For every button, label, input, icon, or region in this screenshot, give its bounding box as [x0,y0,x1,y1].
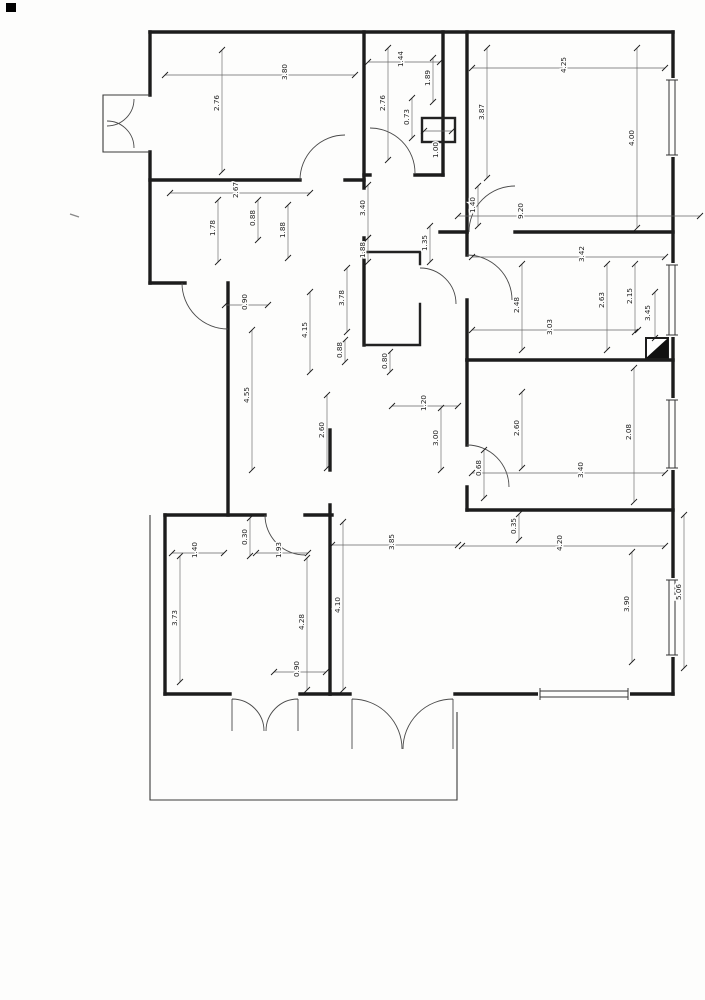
dimension-label: 1.40 [468,197,477,213]
dimension-label: 1.44 [396,51,405,67]
windows [538,78,679,700]
dimension-label: 0.30 [240,529,249,545]
french-door-living-left [352,699,402,749]
walls [150,32,673,694]
dimension-label: 4.28 [297,614,306,630]
dimension-label: 4.00 [627,130,636,146]
dimension: 2.60 [317,392,330,471]
window-right-2 [665,263,679,337]
dimension: 1.35 [420,223,433,265]
door-corridor [182,283,228,329]
dimension-label: 0.90 [240,294,249,310]
dimension-label: 1.93 [274,542,283,558]
dimension-label: 1.88 [278,222,287,238]
door-room1 [467,255,512,300]
dimension: 1.93 [253,542,311,558]
dimension: 1.44 [365,51,443,67]
dimension-label: 3.73 [170,610,179,626]
dimension-label: 2.15 [625,288,634,304]
dimension: 2.63 [597,261,610,353]
dimension-label: 3.85 [387,534,396,550]
dimension: 1.88 [278,202,291,261]
duct-nook [422,118,455,142]
dimension-label: 4.15 [300,322,309,338]
dimension-label: 9.20 [516,203,525,219]
dimension: 3.87 [477,45,490,181]
dimension: 1.89 [423,55,436,105]
dimension-label: 0.80 [380,353,389,369]
french-door-small-right [266,699,298,731]
dimension-label: 3.90 [622,596,631,612]
dimension: 2.08 [624,365,637,505]
french-door-living-right [403,699,453,749]
dimension-label: 3.40 [576,462,585,478]
dimension: 3.40 [358,182,371,241]
dimension: 3.40 [469,462,668,478]
dimension: 3.85 [329,534,461,550]
dimension-label: 2.67 [231,182,240,198]
dimension-label: 4.55 [242,387,251,403]
dimension: 9.20 [455,203,703,219]
dimension: 4.55 [242,327,255,473]
dimension-label: 0.88 [248,210,257,226]
dimension: 0.80 [380,349,393,375]
dimension: 3.42 [469,246,668,262]
shaft-symbol [646,338,668,358]
dimension-label: 1.89 [423,70,432,86]
dimension: 2.67 [167,182,313,198]
dimension-label: 3.42 [577,246,586,262]
french-door-small-left [232,699,264,731]
dimension-label: 3.78 [337,290,346,306]
wall-wc [364,252,420,345]
dimension: 4.15 [300,289,313,375]
dimension: 1.40 [169,542,227,558]
stray-mark [70,214,79,217]
dimension-label: 1.78 [208,220,217,236]
dimension: 3.00 [431,405,444,473]
dimension-label: 1.35 [420,235,429,251]
scan-artifacts [6,3,79,217]
dimension-label: 4.25 [559,57,568,73]
dimension-label: 1.20 [419,395,428,411]
dimension: 4.20 [459,535,668,551]
dimension: 1.20 [389,395,461,411]
dimension-label: 0.90 [292,661,301,677]
dimension: 0.35 [509,511,522,543]
door-wc [420,268,456,304]
dimension: 3.78 [337,265,350,335]
dimension-label: 4.10 [333,597,342,613]
dimension-label: 2.63 [597,292,606,308]
window-bottom-living [538,687,630,700]
dimension: 3.73 [170,553,183,685]
dimension-label: 0.88 [335,342,344,358]
door-bottomleft-room [265,515,305,555]
dimension: 2.76 [378,45,391,163]
dimension-label: 0.68 [474,460,483,476]
doors [107,99,515,749]
dimension: 0.73 [402,95,415,141]
dimension: 3.80 [162,64,358,80]
dimension-label: 1.40 [190,542,199,558]
dimension: 0.88 [335,337,348,365]
dimension-label: 3.87 [477,104,486,120]
dimension-label: 2.76 [378,95,387,111]
dimension-label: 2.60 [512,420,521,436]
dimension: 4.00 [627,45,640,231]
dimension: 1.78 [208,197,221,265]
dimension-label: 2.60 [317,422,326,438]
dimension-label: 1.00 [431,142,440,158]
dimension: 3.03 [469,319,641,335]
corner-scan-mark [6,3,16,12]
dimension-annotations: 3.802.762.671.780.881.880.904.554.153.78… [162,45,703,693]
dimension: 4.25 [469,57,668,73]
dimension: 3.45 [643,289,658,341]
dimension: 0.68 [474,447,487,501]
entry-door-leaf-bottom [107,121,134,148]
dimension-label: 4.20 [555,535,564,551]
thin-outlines [103,95,457,800]
window-right-1 [665,78,679,157]
dimension-label: 3.40 [358,200,367,216]
dimension: 0.90 [271,661,329,677]
dimension-label: 3.80 [280,64,289,80]
dimension: 2.76 [212,47,225,175]
dimension-label: 0.35 [509,518,518,534]
dimension: 2.60 [512,389,525,471]
floor-plan-page: 3.802.762.671.780.881.880.904.554.153.78… [0,0,705,1000]
dimension: 0.30 [240,515,253,559]
dimension: 0.88 [248,197,261,243]
entry-porch [103,95,150,152]
dimension-label: 2.76 [212,95,221,111]
dimension-label: 5.06 [674,584,683,600]
dimension-label: 2.08 [624,424,633,440]
dimension-label: 3.00 [431,430,440,446]
dimension: 2.15 [625,261,638,335]
entry-door-leaf-top [107,99,134,126]
window-right-3 [665,398,679,470]
floor-plan-canvas: 3.802.762.671.780.881.880.904.554.153.78… [0,0,705,1000]
dimension: 3.90 [622,549,635,665]
dimension-label: 0.73 [402,109,411,125]
door-topleft-room [300,135,345,180]
dimension-label: 1.88 [358,242,367,258]
dimension-label: 3.03 [545,319,554,335]
dimension: 2.48 [512,261,525,353]
door-bathroom [370,128,415,173]
dimension-label: 2.48 [512,297,521,313]
dimension-label: 3.45 [643,305,652,321]
